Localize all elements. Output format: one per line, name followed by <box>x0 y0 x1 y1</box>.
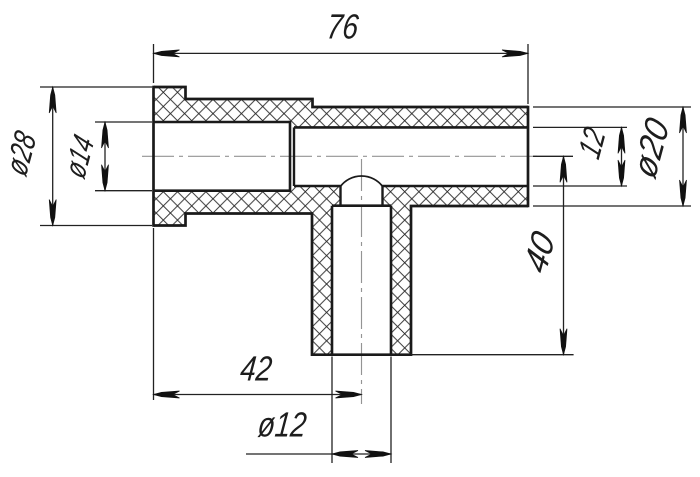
svg-text:ø12: ø12 <box>256 405 309 445</box>
svg-text:40: 40 <box>518 225 562 279</box>
svg-text:12: 12 <box>573 122 613 164</box>
svg-text:ø20: ø20 <box>627 112 677 184</box>
svg-text:76: 76 <box>325 6 361 46</box>
svg-text:ø14: ø14 <box>58 130 100 184</box>
svg-text:42: 42 <box>239 349 275 389</box>
svg-text:ø28: ø28 <box>0 126 44 181</box>
